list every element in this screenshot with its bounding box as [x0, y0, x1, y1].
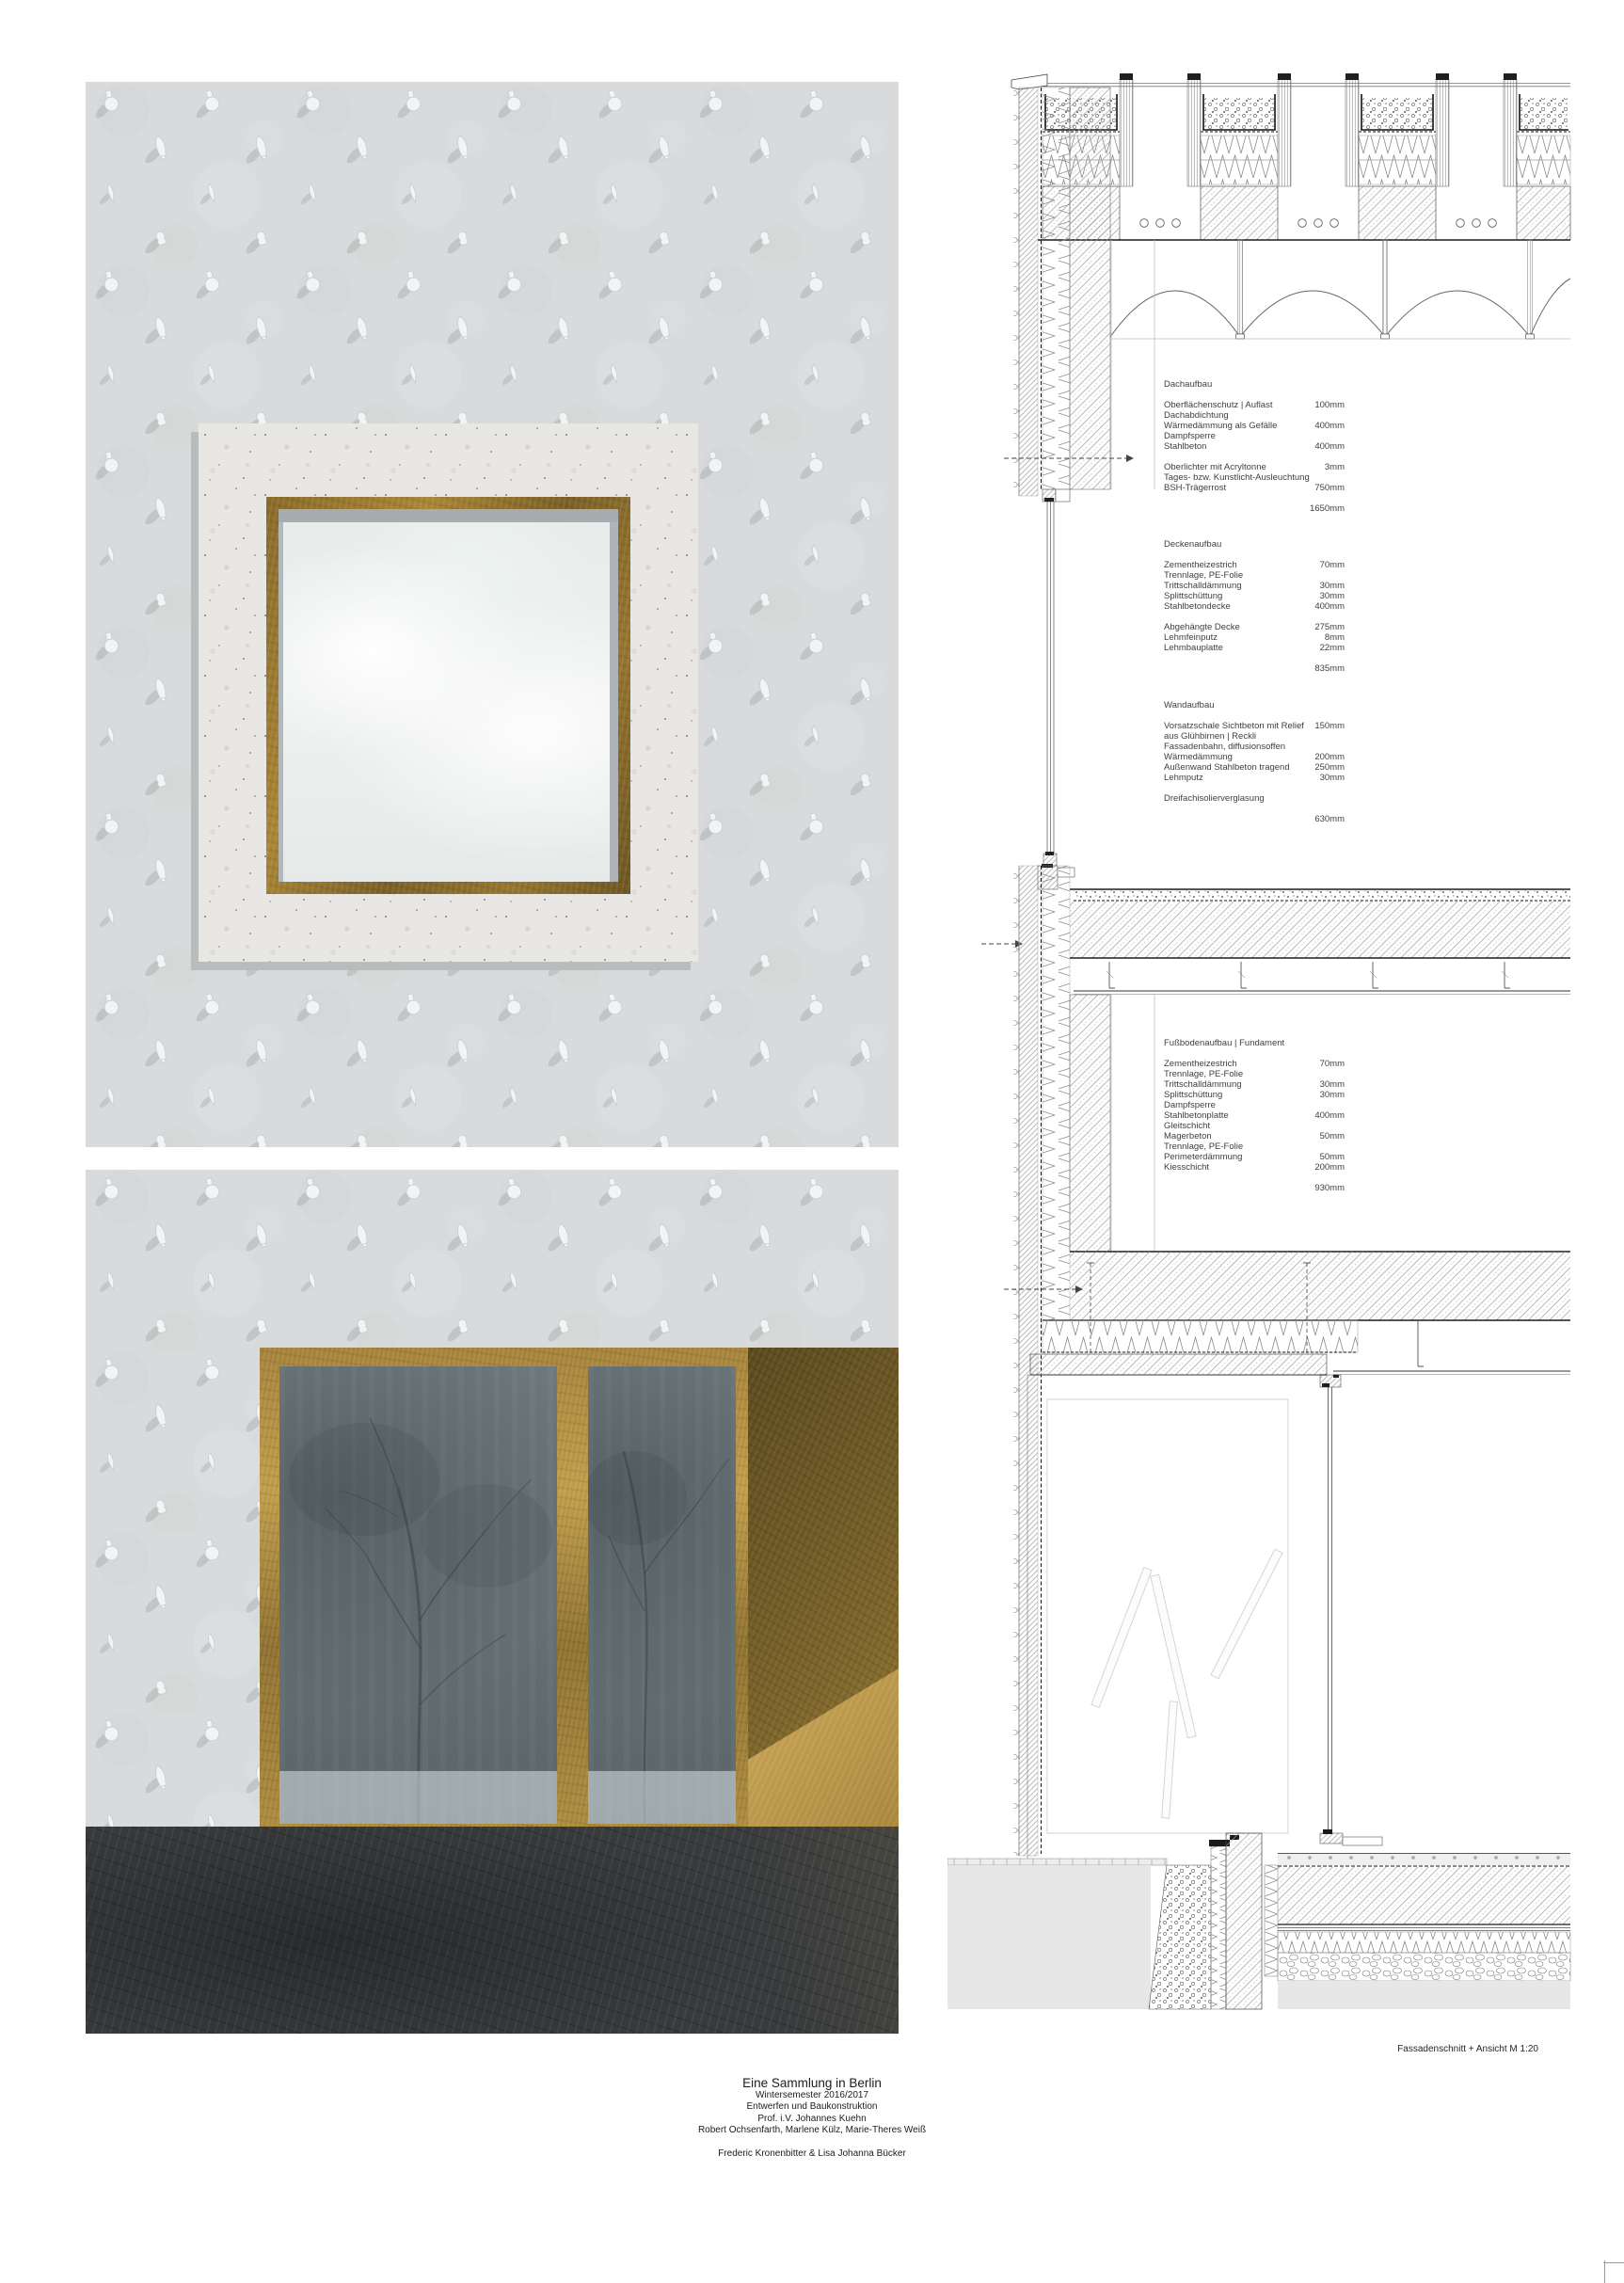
- layer-label: Perimeterdämmung: [1164, 1152, 1242, 1162]
- layer-value: 275mm: [1314, 622, 1345, 632]
- roof-section: [1038, 73, 1570, 240]
- construction-layer-row: Splittschüttung30mm: [1164, 1090, 1345, 1100]
- layer-value: 400mm: [1314, 1110, 1345, 1121]
- gold-wall-light-triangle: [748, 1348, 899, 1827]
- layer-label: Dampfsperre: [1164, 431, 1216, 441]
- gold-window-frame: [266, 497, 630, 894]
- annotation-ceiling-buildup: Deckenaufbau Zementheizestrich70mmTrennl…: [1164, 539, 1345, 674]
- construction-layer-row: Tages- bzw. Kunstlicht-Ausleuchtung: [1164, 472, 1345, 483]
- construction-layer-row: Oberflächenschutz | Auflast100mm: [1164, 400, 1345, 410]
- construction-layer-row: Lehmfeinputz8mm: [1164, 632, 1345, 643]
- layer-label: Trennlage, PE-Folie: [1164, 1141, 1243, 1152]
- layer-label: Lehmfeinputz: [1164, 632, 1218, 643]
- layer-label: Abgehängte Decke: [1164, 622, 1240, 632]
- layer-label: Kiesschicht: [1164, 1162, 1209, 1173]
- layer-label: Stahlbetondecke: [1164, 601, 1231, 612]
- layer-label: Außenwand Stahlbeton tragend: [1164, 762, 1290, 773]
- construction-layer-row: Lehmbauplatte22mm: [1164, 643, 1345, 653]
- layer-total-row: 1650mm: [1164, 503, 1345, 514]
- construction-layer-row: Dreifachisolierverglasung: [1164, 793, 1345, 804]
- construction-layer-row: Trittschalldämmung30mm: [1164, 1079, 1345, 1090]
- layer-value: 30mm: [1320, 1079, 1345, 1090]
- layer-label: Dampfsperre: [1164, 1100, 1216, 1110]
- layer-total-row: 630mm: [1164, 814, 1345, 824]
- layer-label: Wärmedämmung: [1164, 752, 1233, 762]
- layer-label: Stahlbeton: [1164, 441, 1206, 452]
- layer-value: 30mm: [1320, 581, 1345, 591]
- construction-layer-row: Zementheizestrich70mm: [1164, 1059, 1345, 1069]
- layer-total: 1650mm: [1310, 503, 1345, 514]
- layer-value: 750mm: [1314, 483, 1345, 493]
- construction-layer-row: Trittschalldämmung30mm: [1164, 581, 1345, 591]
- construction-layer-row: Fassadenbahn, diffusionsoffen: [1164, 742, 1345, 752]
- construction-layer-row: Außenwand Stahlbeton tragend250mm: [1164, 762, 1345, 773]
- layer-label: Zementheizestrich: [1164, 560, 1237, 570]
- annotation-heading: Deckenaufbau: [1164, 539, 1345, 550]
- glass-reflection-band: [588, 1771, 736, 1824]
- layer-value: 50mm: [1320, 1152, 1345, 1162]
- construction-layer-row: Abgehängte Decke275mm: [1164, 622, 1345, 632]
- construction-layer-row: [1164, 783, 1345, 793]
- layer-value: 400mm: [1314, 421, 1345, 431]
- layer-value: 70mm: [1320, 560, 1345, 570]
- construction-layer-row: Lehmputz30mm: [1164, 773, 1345, 783]
- recess-shadow-left: [279, 522, 283, 882]
- layer-value: 30mm: [1320, 591, 1345, 601]
- annotation-heading: Dachaufbau: [1164, 379, 1345, 390]
- layer-label: Magerbeton: [1164, 1131, 1212, 1141]
- layer-value: 200mm: [1314, 1162, 1345, 1173]
- layer-list: Zementheizestrich70mmTrennlage, PE-Folie…: [1164, 1059, 1345, 1173]
- drawing-scale-label: Fassadenschnitt + Ansicht M 1:20: [1162, 2044, 1538, 2054]
- layer-label: Gleitschicht: [1164, 1121, 1210, 1131]
- construction-layer-row: Perimeterdämmung50mm: [1164, 1152, 1345, 1162]
- title-line: Entwerfen und Baukonstruktion: [565, 2101, 1059, 2113]
- construction-layer-row: Wärmedämmung als Gefälle400mm: [1164, 421, 1345, 431]
- construction-layer-row: Trennlage, PE-Folie: [1164, 1069, 1345, 1079]
- layer-value: 30mm: [1320, 1090, 1345, 1100]
- upper-storey-glazing: [1043, 489, 1070, 866]
- construction-layer-row: BSH-Trägerrost750mm: [1164, 483, 1345, 493]
- layer-label: aus Glühbirnen | Reckli: [1164, 731, 1256, 742]
- layer-list: Oberflächenschutz | Auflast100mmDachabdi…: [1164, 400, 1345, 493]
- layer-label: Trennlage, PE-Folie: [1164, 1069, 1243, 1079]
- crop-mark-horizontal: [1603, 2262, 1624, 2263]
- dark-concrete-floor: [86, 1827, 899, 2034]
- glass-reflection-band: [279, 1771, 557, 1824]
- roof-skylight-glazing: [1038, 84, 1570, 87]
- crop-mark-vertical: [1604, 2260, 1605, 2283]
- layer-value: 70mm: [1320, 1059, 1345, 1069]
- construction-layer-row: Oberlichter mit Acryltonne3mm: [1164, 462, 1345, 472]
- layer-label: Oberlichter mit Acryltonne: [1164, 462, 1266, 472]
- construction-layer-row: Zementheizestrich70mm: [1164, 560, 1345, 570]
- layer-value: 3mm: [1325, 462, 1345, 472]
- gold-leaf-wall: [748, 1348, 899, 1827]
- layer-value: 400mm: [1314, 601, 1345, 612]
- facade-section-drawing: [947, 56, 1578, 2014]
- construction-layer-row: Dachabdichtung: [1164, 410, 1345, 421]
- construction-layer-row: [1164, 452, 1345, 462]
- annotation-heading: Wandaufbau: [1164, 700, 1345, 710]
- layer-label: Trittschalldämmung: [1164, 1079, 1242, 1090]
- layer-total: 930mm: [1314, 1183, 1345, 1193]
- layer-value: 200mm: [1314, 752, 1345, 762]
- layer-label: Dachabdichtung: [1164, 410, 1229, 421]
- layer-label: Tages- bzw. Kunstlicht-Ausleuchtung: [1164, 472, 1310, 483]
- tree-reflection: [588, 1366, 736, 1824]
- construction-layer-row: aus Glühbirnen | Reckli: [1164, 731, 1345, 742]
- skylight-curbs: [1120, 73, 1517, 186]
- title-line: Wintersemester 2016/2017: [565, 2090, 1059, 2101]
- layer-value: 30mm: [1320, 773, 1345, 783]
- construction-layer-row: Gleitschicht: [1164, 1121, 1345, 1131]
- layer-label: Zementheizestrich: [1164, 1059, 1237, 1069]
- construction-layer-row: Dampfsperre: [1164, 431, 1345, 441]
- construction-layer-row: Splittschüttung30mm: [1164, 591, 1345, 601]
- presentation-board: Dachaufbau Oberflächenschutz | Auflast10…: [0, 0, 1624, 2283]
- rendering-facade-square-window: [86, 82, 899, 1147]
- construction-layer-row: Trennlage, PE-Folie: [1164, 570, 1345, 581]
- construction-layer-row: Dampfsperre: [1164, 1100, 1345, 1110]
- annotation-heading: Fußbodenaufbau | Fundament: [1164, 1038, 1345, 1048]
- layer-value: 100mm: [1314, 400, 1345, 410]
- rendering-facade-entrance: [86, 1170, 899, 2034]
- vault-ceiling: [1110, 240, 1570, 339]
- glass-reflection-sticks: [1091, 1549, 1282, 1818]
- recess-shadow-right: [610, 522, 618, 882]
- layer-total-row: 930mm: [1164, 1183, 1345, 1193]
- layer-label: Dreifachisolierverglasung: [1164, 793, 1265, 804]
- layer-label: Splittschüttung: [1164, 591, 1222, 601]
- layer-total: 835mm: [1314, 663, 1345, 674]
- construction-layer-row: Stahlbeton400mm: [1164, 441, 1345, 452]
- construction-layer-row: Vorsatzschale Sichtbeton mit Relief150mm: [1164, 721, 1345, 731]
- layer-label: Fassadenbahn, diffusionsoffen: [1164, 742, 1285, 752]
- layer-value: 250mm: [1314, 762, 1345, 773]
- layer-total-row: 835mm: [1164, 663, 1345, 674]
- title-block: Eine Sammlung in Berlin Wintersemester 2…: [565, 2076, 1059, 2160]
- layer-value: 50mm: [1320, 1131, 1345, 1141]
- foundation-section: [947, 1829, 1570, 2009]
- layer-label: Lehmbauplatte: [1164, 643, 1223, 653]
- layer-value: 150mm: [1314, 721, 1345, 731]
- window-glass-left: [279, 1366, 557, 1824]
- layer-value: 8mm: [1325, 632, 1345, 643]
- layer-value: 400mm: [1314, 441, 1345, 452]
- annotation-wall-buildup: Wandaufbau Vorsatzschale Sichtbeton mit …: [1164, 700, 1345, 824]
- frosted-glass: [279, 509, 618, 882]
- construction-layer-row: Trennlage, PE-Folie: [1164, 1141, 1345, 1152]
- authors-line: Frederic Kronenbitter & Lisa Johanna Büc…: [565, 2148, 1059, 2160]
- layer-label: Wärmedämmung als Gefälle: [1164, 421, 1277, 431]
- construction-layer-row: [1164, 612, 1345, 622]
- construction-layer-row: Magerbeton50mm: [1164, 1131, 1345, 1141]
- layer-label: Splittschüttung: [1164, 1090, 1222, 1100]
- construction-layer-row: Wärmedämmung200mm: [1164, 752, 1345, 762]
- layer-label: BSH-Trägerrost: [1164, 483, 1226, 493]
- layer-label: Trittschalldämmung: [1164, 581, 1242, 591]
- light-fittings: [1140, 219, 1497, 228]
- layer-label: Lehmputz: [1164, 773, 1203, 783]
- construction-layer-row: Stahlbetondecke400mm: [1164, 601, 1345, 612]
- tree-reflection: [279, 1366, 557, 1824]
- annotation-roof-buildup: Dachaufbau Oberflächenschutz | Auflast10…: [1164, 379, 1345, 514]
- title-line: Prof. i.V. Johannes Kuehn: [565, 2114, 1059, 2125]
- layer-value: 22mm: [1320, 643, 1345, 653]
- window-glass-right: [588, 1366, 736, 1824]
- project-title: Eine Sammlung in Berlin: [565, 2076, 1059, 2090]
- layer-label: Trennlage, PE-Folie: [1164, 570, 1243, 581]
- layer-list: Zementheizestrich70mmTrennlage, PE-Folie…: [1164, 560, 1345, 653]
- construction-layer-row: Kiesschicht200mm: [1164, 1162, 1345, 1173]
- annotation-floor-foundation-buildup: Fußbodenaufbau | Fundament Zementheizest…: [1164, 1038, 1345, 1193]
- layer-label: Vorsatzschale Sichtbeton mit Relief: [1164, 721, 1304, 731]
- layer-list: Vorsatzschale Sichtbeton mit Relief150mm…: [1164, 721, 1345, 804]
- title-lines: Wintersemester 2016/2017Entwerfen und Ba…: [565, 2090, 1059, 2136]
- layer-total: 630mm: [1314, 814, 1345, 824]
- recess-shadow-top: [279, 509, 618, 522]
- layer-label: Oberflächenschutz | Auflast: [1164, 400, 1272, 410]
- layer-label: Stahlbetonplatte: [1164, 1110, 1229, 1121]
- lower-window: [1027, 1375, 1341, 1859]
- construction-layer-row: Stahlbetonplatte400mm: [1164, 1110, 1345, 1121]
- title-line: Robert Ochsenfarth, Marlene Külz, Marie-…: [565, 2125, 1059, 2136]
- window-lintel-slab: [1004, 1252, 1570, 1375]
